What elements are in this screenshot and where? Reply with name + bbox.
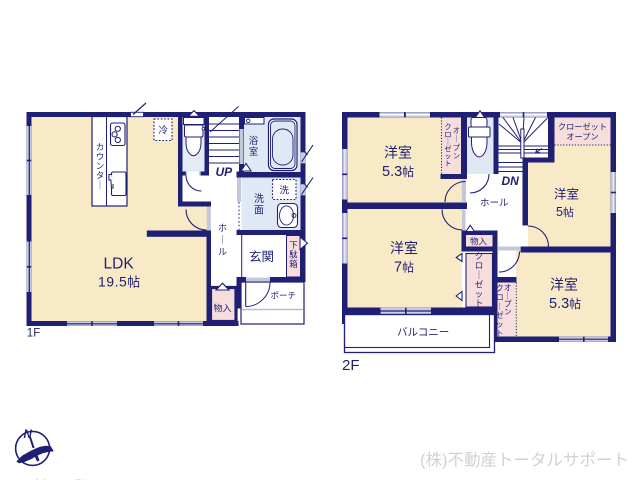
- svg-text:洗: 洗: [280, 185, 290, 197]
- svg-text:物入: 物入: [214, 303, 232, 314]
- svg-text:オープン: オープン: [566, 133, 598, 142]
- svg-text:ホール: ホール: [480, 198, 509, 209]
- svg-text:5.3帖: 5.3帖: [549, 296, 581, 312]
- svg-text:UP: UP: [216, 165, 234, 179]
- svg-text:ポーチ: ポーチ: [271, 291, 297, 301]
- svg-text:LDK: LDK: [104, 256, 135, 273]
- svg-text:洋室: 洋室: [550, 277, 578, 293]
- svg-text:浴室: 浴室: [249, 136, 259, 158]
- svg-text:カウンタ｜: カウンタ｜: [96, 142, 105, 190]
- svg-text:19.5帖: 19.5帖: [98, 274, 141, 290]
- svg-text:下駄箱: 下駄箱: [289, 240, 298, 269]
- svg-text:クローゼット: クローゼット: [558, 122, 607, 132]
- svg-text:冷: 冷: [159, 125, 169, 137]
- svg-text:洋室: 洋室: [554, 187, 579, 202]
- svg-text:洗面: 洗面: [254, 193, 264, 217]
- svg-text:オ｜プン: オ｜プン: [504, 284, 512, 317]
- svg-text:1F: 1F: [27, 328, 40, 340]
- svg-text:玄関: 玄関: [249, 249, 274, 264]
- svg-text:2F: 2F: [342, 357, 360, 374]
- svg-text:クロ｜ゼット: クロ｜ゼット: [444, 123, 451, 169]
- svg-text:DN: DN: [502, 174, 520, 188]
- svg-text:クロ｜ゼット: クロ｜ゼット: [496, 284, 504, 338]
- svg-text:クロ｜ゼット: クロ｜ゼット: [475, 251, 484, 308]
- svg-text:5帖: 5帖: [556, 205, 574, 219]
- svg-text:洋室: 洋室: [390, 240, 418, 256]
- svg-text:バルコニー: バルコニー: [397, 327, 449, 339]
- svg-text:ホ｜ル: ホ｜ル: [218, 223, 227, 257]
- svg-text:洋室: 洋室: [384, 145, 412, 161]
- svg-text:物入: 物入: [470, 237, 488, 247]
- svg-text:7帖: 7帖: [394, 260, 414, 276]
- svg-text:オ｜プン: オ｜プン: [453, 126, 461, 161]
- svg-text:(株)不動産トータルサポート: (株)不動産トータルサポート: [420, 451, 629, 470]
- svg-text:5.3帖: 5.3帖: [382, 164, 414, 180]
